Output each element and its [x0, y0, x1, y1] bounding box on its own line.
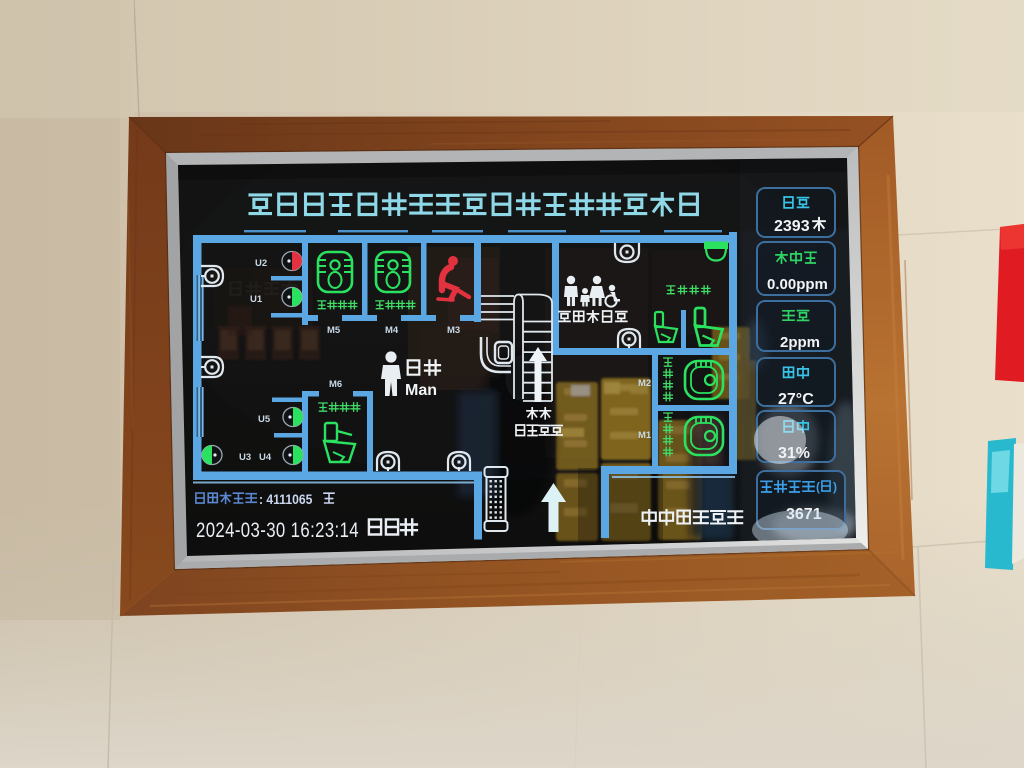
- svg-text:M5: M5: [327, 325, 341, 336]
- svg-text:27°C: 27°C: [778, 391, 814, 408]
- svg-text:M3: M3: [447, 325, 460, 336]
- svg-text:M4: M4: [385, 325, 399, 336]
- svg-text:M1: M1: [638, 430, 652, 441]
- svg-text:2ppm: 2ppm: [780, 334, 820, 351]
- svg-text:(: (: [816, 480, 820, 494]
- svg-text:): ): [833, 480, 837, 494]
- svg-text:2393: 2393: [774, 218, 810, 235]
- svg-text:: 4111065: : 4111065: [259, 491, 312, 507]
- svg-text:U5: U5: [258, 414, 271, 425]
- svg-text:U2: U2: [255, 258, 267, 269]
- svg-text:2024-03-30 16:23:14: 2024-03-30 16:23:14: [196, 519, 359, 542]
- svg-text:Man: Man: [405, 382, 437, 399]
- svg-text:U3: U3: [239, 452, 251, 463]
- svg-text:M2: M2: [638, 378, 651, 389]
- svg-text:0.00ppm: 0.00ppm: [767, 276, 828, 293]
- svg-text:M6: M6: [329, 379, 342, 390]
- svg-text:U1: U1: [250, 294, 263, 305]
- svg-text:U4: U4: [259, 452, 272, 463]
